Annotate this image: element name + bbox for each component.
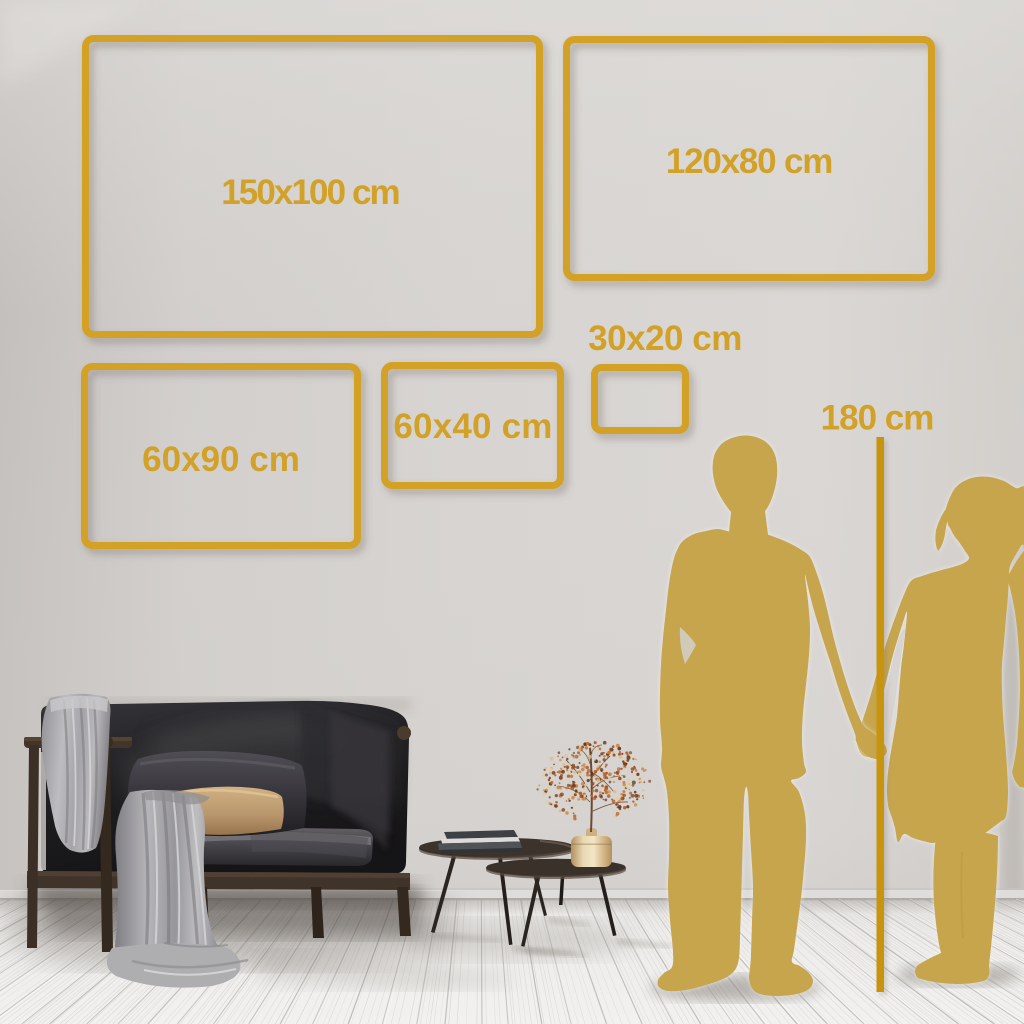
svg-text:60x40 cm: 60x40 cm — [393, 407, 552, 446]
svg-text:120x80 cm: 120x80 cm — [666, 142, 832, 181]
svg-text:60x90 cm: 60x90 cm — [142, 440, 300, 479]
svg-text:150x100 cm: 150x100 cm — [221, 173, 399, 212]
svg-text:30x20 cm: 30x20 cm — [588, 319, 742, 358]
svg-text:180 cm: 180 cm — [821, 399, 934, 438]
